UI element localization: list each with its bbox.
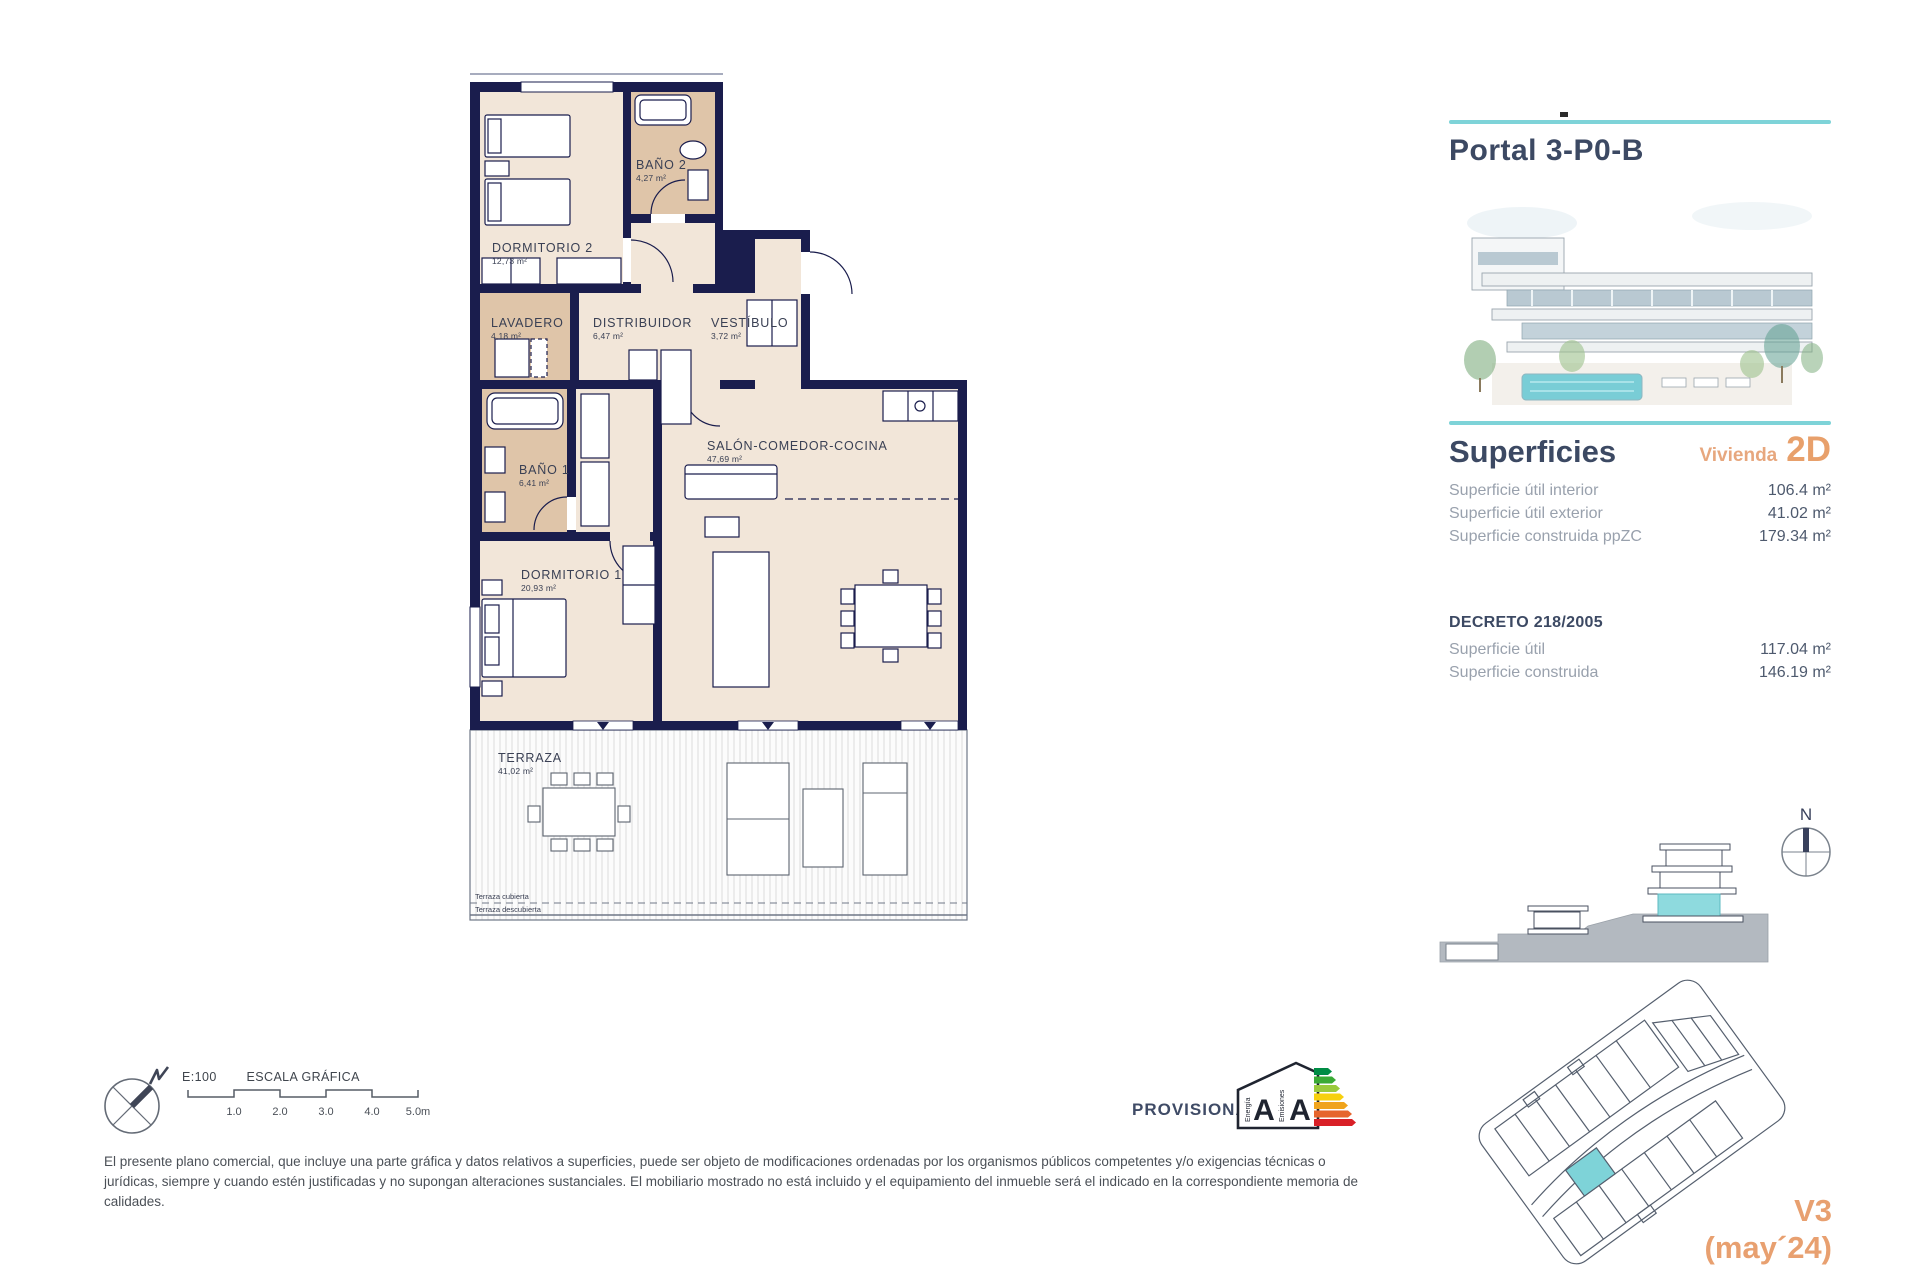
highlighted-floor — [1658, 894, 1720, 916]
teal-divider-top — [1449, 120, 1831, 124]
floor-plan: DORMITORIO 2 12,73 m² BAÑO 2 4,27 m² LAV… — [455, 62, 1000, 937]
terraza-descubierta-note: Terraza descubierta — [475, 905, 542, 914]
energy-axis-left: Energía — [1245, 1097, 1252, 1122]
scale-bar: 1.0 2.0 3.0 4.0 5.0m — [186, 1084, 436, 1124]
section-compass-icon: N — [1782, 805, 1830, 876]
superficie-row: Superficie útil interior 106.4 m² — [1449, 479, 1831, 502]
superficie-row: Superficie construida ppZC 179.34 m² — [1449, 525, 1831, 548]
room-label-bano-2: BAÑO 2 — [636, 158, 687, 172]
svg-text:20,93 m²: 20,93 m² — [521, 583, 556, 593]
version-date: (may´24) — [1560, 1229, 1832, 1266]
decreto-section: DECRETO 218/2005 Superficie útil 117.04 … — [1449, 614, 1831, 684]
scale-ratio: E:100 — [182, 1070, 217, 1084]
room-label-dormitorio-1: DORMITORIO 1 — [521, 568, 622, 582]
section-compass-label: N — [1800, 805, 1812, 824]
legal-disclaimer: El presente plano comercial, que incluye… — [104, 1152, 1374, 1212]
version-code: V3 — [1560, 1192, 1832, 1229]
version-block: V3 (may´24) — [1560, 1192, 1832, 1266]
superficie-row: Superficie útil exterior 41.02 m² — [1449, 502, 1831, 525]
superficies-heading: Superficies — [1449, 434, 1616, 470]
svg-text:4,27 m²: 4,27 m² — [636, 173, 666, 183]
room-label-terraza: TERRAZA — [498, 751, 562, 765]
scale-title: ESCALA GRÁFICA — [247, 1070, 360, 1084]
terraza-cubierta-note: Terraza cubierta — [475, 892, 530, 901]
room-label-dormitorio-2: DORMITORIO 2 — [492, 241, 593, 255]
room-label-salon: SALÓN-COMEDOR-COCINA — [707, 438, 888, 453]
north-glyph — [150, 1067, 168, 1084]
svg-text:6,47 m²: 6,47 m² — [593, 331, 623, 341]
energy-letter-left: A — [1253, 1094, 1275, 1127]
decreto-row: Superficie construida 146.19 m² — [1449, 661, 1831, 684]
vivienda-code: 2D — [1786, 430, 1831, 469]
energy-axis-right: Emisiones — [1279, 1089, 1286, 1122]
building-illustration — [1452, 178, 1832, 418]
energy-letter-right: A — [1289, 1094, 1311, 1127]
svg-text:3.0: 3.0 — [318, 1106, 333, 1118]
teal-divider-superficies — [1449, 421, 1831, 425]
svg-text:12,73 m²: 12,73 m² — [492, 256, 527, 266]
decreto-row: Superficie útil 117.04 m² — [1449, 638, 1831, 661]
svg-text:4.0: 4.0 — [364, 1106, 379, 1118]
svg-text:5.0m: 5.0m — [406, 1106, 430, 1118]
svg-text:2.0: 2.0 — [272, 1106, 287, 1118]
svg-text:4,18 m²: 4,18 m² — [491, 331, 521, 341]
logo-mark-remnant — [1560, 112, 1568, 117]
vivienda-label: Vivienda — [1699, 445, 1777, 466]
room-label-bano-1: BAÑO 1 — [519, 463, 570, 477]
superficies-section: Superficies Vivienda2D Superficie útil i… — [1449, 430, 1831, 548]
floor-plan-drawing: DORMITORIO 2 12,73 m² BAÑO 2 4,27 m² LAV… — [455, 62, 1000, 937]
plan-sheet: DORMITORIO 2 12,73 m² BAÑO 2 4,27 m² LAV… — [0, 0, 1920, 1280]
scale-caption: E:100 ESCALA GRÁFICA — [182, 1070, 360, 1084]
building-section-diagram: N — [1438, 790, 1848, 970]
room-label-distribuidor: DISTRIBUIDOR — [593, 316, 692, 330]
svg-text:3,72 m²: 3,72 m² — [711, 331, 741, 341]
energy-rating-icon: Energía A Emisiones A — [1228, 1056, 1363, 1140]
room-label-lavadero: LAVADERO — [491, 316, 564, 330]
svg-text:47,69 m²: 47,69 m² — [707, 454, 742, 464]
svg-text:6,41 m²: 6,41 m² — [519, 478, 549, 488]
svg-text:1.0: 1.0 — [226, 1106, 241, 1118]
unit-title: Portal 3-P0-B — [1449, 134, 1644, 168]
decreto-heading: DECRETO 218/2005 — [1449, 614, 1831, 632]
room-label-vestibulo: VESTÍBULO — [711, 315, 788, 330]
north-compass-icon — [96, 1064, 171, 1139]
svg-text:41,02 m²: 41,02 m² — [498, 766, 533, 776]
energy-arrows — [1314, 1068, 1356, 1126]
